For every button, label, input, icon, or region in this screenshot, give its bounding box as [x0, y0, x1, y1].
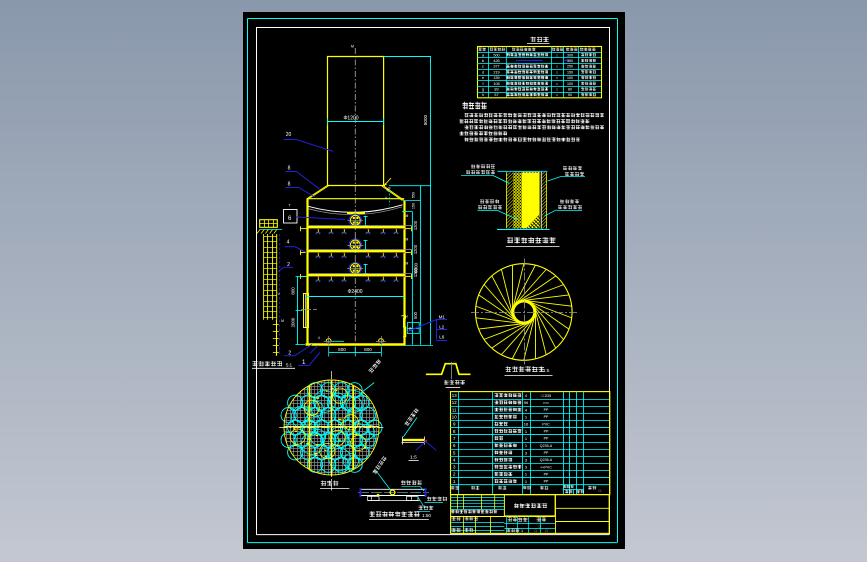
svg-text:h: h	[482, 93, 484, 97]
svg-text:□: □	[556, 87, 558, 91]
svg-text:Φ1200: Φ1200	[343, 116, 358, 122]
svg-text:800: 800	[364, 347, 372, 352]
svg-text:8: 8	[288, 166, 291, 172]
svg-text:×××: ×××	[543, 401, 549, 405]
svg-text:8000: 8000	[423, 114, 428, 125]
svg-text:300: 300	[567, 59, 573, 63]
svg-text:150: 150	[411, 203, 415, 209]
svg-text:PP: PP	[544, 408, 549, 412]
svg-text:c: c	[482, 65, 484, 69]
svg-text:150: 150	[567, 70, 573, 74]
svg-text:2000: 2000	[291, 317, 296, 327]
svg-text:□: □	[556, 70, 558, 74]
svg-text:377: 377	[493, 65, 499, 69]
svg-text:100: 100	[567, 82, 573, 86]
svg-text:300: 300	[567, 53, 573, 57]
svg-text:PP: PP	[544, 415, 549, 419]
svg-text:PP: PP	[544, 430, 549, 434]
svg-text:Q235-A: Q235-A	[540, 458, 553, 462]
svg-text:4: 4	[287, 240, 290, 246]
svg-text:108: 108	[493, 82, 499, 86]
svg-text:b: b	[482, 59, 484, 63]
svg-text:20: 20	[286, 132, 292, 138]
svg-text:□: □	[556, 76, 558, 80]
svg-text:250: 250	[567, 65, 573, 69]
svg-text:11: 11	[452, 407, 457, 412]
svg-text:□: □	[556, 65, 558, 69]
svg-text:1:50: 1:50	[422, 513, 431, 518]
svg-text:Φ2400: Φ2400	[347, 289, 362, 295]
svg-text:Q235-A: Q235-A	[540, 444, 553, 448]
svg-text:219: 219	[493, 70, 499, 74]
svg-text:159: 159	[493, 76, 499, 80]
svg-text:4: 4	[318, 336, 320, 340]
svg-text:1:5: 1:5	[543, 368, 550, 373]
svg-text:∅: ∅	[385, 196, 388, 200]
svg-text:□□235: □□235	[541, 394, 551, 398]
svg-text:M: M	[281, 319, 284, 323]
svg-text:80: 80	[568, 87, 572, 91]
svg-text:M: M	[406, 214, 409, 218]
svg-text:10: 10	[452, 414, 457, 419]
svg-text:16: 16	[524, 422, 529, 427]
svg-text:5:1: 5:1	[286, 363, 293, 368]
svg-text:PP: PP	[544, 473, 549, 477]
svg-text:M: M	[406, 238, 409, 242]
svg-text:g: g	[482, 87, 484, 91]
svg-text:1:5: 1:5	[410, 455, 417, 461]
svg-text:800: 800	[338, 347, 346, 352]
svg-text:PP: PP	[544, 437, 549, 441]
svg-text:1200: 1200	[413, 267, 418, 277]
svg-text:PP: PP	[544, 480, 549, 484]
svg-text:PVC: PVC	[542, 422, 550, 426]
svg-text:57: 57	[494, 93, 498, 97]
svg-text:M: M	[351, 45, 354, 49]
svg-text:1: 1	[302, 359, 306, 366]
svg-text:L2: L2	[439, 324, 445, 329]
svg-text:e: e	[482, 76, 484, 80]
svg-text:89: 89	[494, 87, 498, 91]
svg-text:13: 13	[452, 393, 457, 398]
svg-text:M1: M1	[439, 314, 446, 319]
svg-text:426: 426	[493, 59, 499, 63]
svg-text:1200: 1200	[413, 244, 418, 254]
svg-text:50: 50	[568, 93, 572, 97]
svg-text:500: 500	[493, 53, 499, 57]
svg-text:96: 96	[524, 400, 529, 405]
svg-text:M: M	[406, 262, 409, 266]
svg-text:××PVC: ××PVC	[540, 465, 552, 469]
svg-text:L6: L6	[439, 335, 445, 340]
svg-text:□: □	[556, 82, 558, 86]
svg-text:d: d	[482, 70, 484, 74]
svg-text:1200: 1200	[413, 220, 418, 230]
svg-text:800: 800	[291, 287, 296, 295]
svg-text:8: 8	[288, 182, 291, 188]
svg-text:1: 1	[521, 529, 523, 533]
svg-text:□: □	[556, 53, 558, 57]
svg-text:550: 550	[411, 192, 415, 198]
svg-text:100: 100	[567, 76, 573, 80]
svg-text:500: 500	[413, 311, 418, 319]
svg-text:PP: PP	[544, 451, 549, 455]
svg-text:□: □	[556, 93, 558, 97]
svg-text:12: 12	[452, 400, 457, 405]
